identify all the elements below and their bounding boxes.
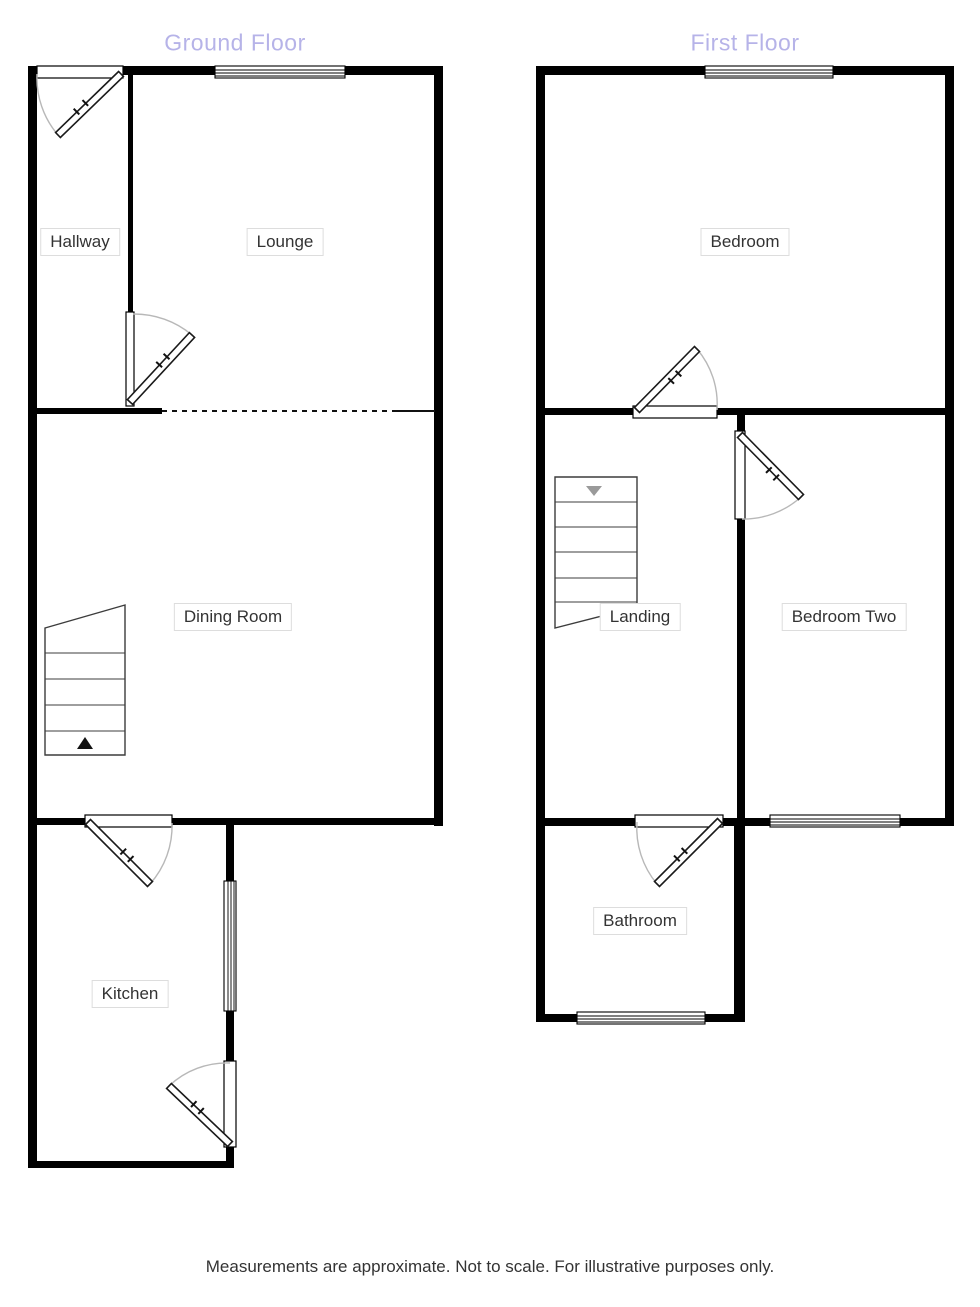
gf-hallway-lounge-wall [128, 75, 133, 312]
bathroom-window [577, 1012, 705, 1024]
kitchen-door [85, 815, 172, 887]
gf-left-wall [28, 66, 37, 1168]
ff-left-wall [536, 66, 545, 1022]
room-label-bedroom-two: Bedroom Two [782, 603, 907, 631]
room-label-bathroom: Bathroom [593, 907, 687, 935]
floorplan-drawing [0, 0, 980, 1307]
ff-bedroom-bottom-wall [536, 408, 954, 415]
lounge-door [126, 312, 195, 406]
gf-kitchen-bottom-wall [28, 1161, 234, 1168]
kitchen-window [224, 881, 236, 1011]
bedroom-door [633, 347, 717, 419]
bedroom-window [705, 66, 833, 78]
kitchen-rear-door [167, 1061, 236, 1147]
first-floor-plan [536, 66, 954, 1024]
ff-bathroom-right-wall [734, 818, 745, 1022]
room-label-hallway: Hallway [40, 228, 120, 256]
room-label-lounge: Lounge [247, 228, 324, 256]
gf-right-wall [434, 66, 443, 826]
ff-right-wall [945, 66, 954, 826]
lounge-window [215, 66, 345, 78]
bedroom-two-door [735, 431, 804, 519]
front-door [37, 66, 123, 138]
bathroom-door [635, 815, 723, 887]
room-label-landing: Landing [600, 603, 681, 631]
gf-lounge-dining-wall [28, 408, 162, 414]
room-label-kitchen: Kitchen [92, 980, 169, 1008]
staircase-up [45, 605, 125, 755]
room-label-dining-room: Dining Room [174, 603, 292, 631]
floorplan-page: { "colors": { "background": "#ffffff", "… [0, 0, 980, 1307]
room-label-bedroom: Bedroom [701, 228, 790, 256]
bedroom-two-window [770, 815, 900, 827]
